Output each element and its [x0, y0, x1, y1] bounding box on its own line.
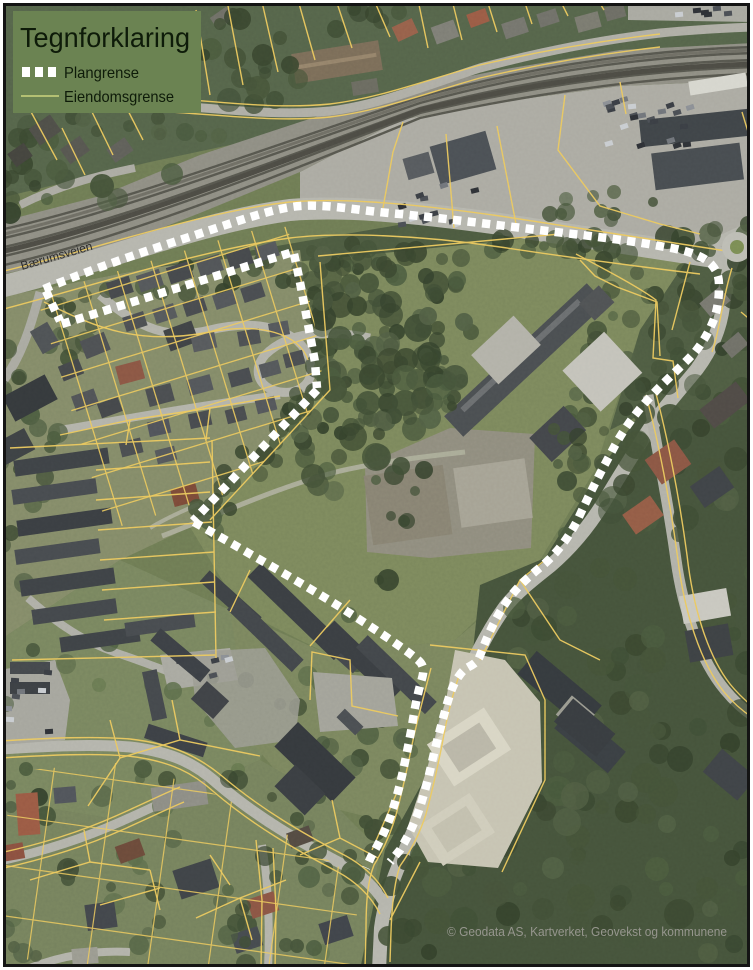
svg-text:Eiendomsgrense: Eiendomsgrense — [64, 89, 174, 106]
svg-text:Tegnforklaring: Tegnforklaring — [20, 22, 190, 53]
svg-text:© Geodata AS, Kartverket, Geov: © Geodata AS, Kartverket, Geovekst og ko… — [447, 924, 727, 939]
svg-text:Plangrense: Plangrense — [64, 65, 139, 82]
